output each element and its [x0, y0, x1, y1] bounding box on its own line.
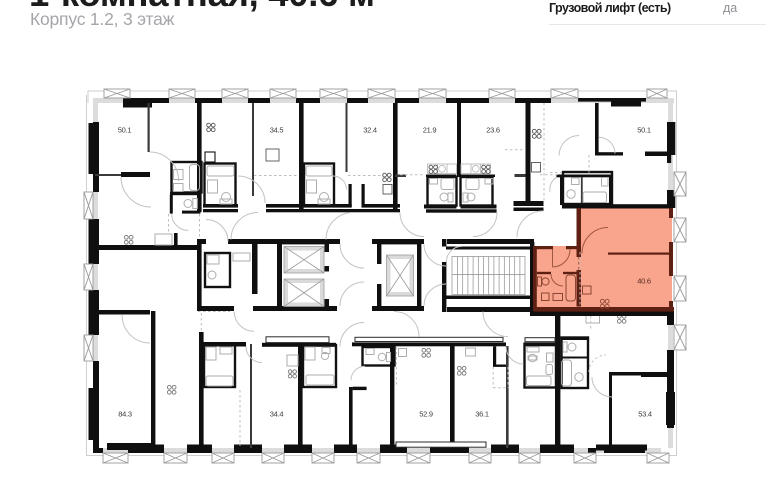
svg-text:34.5: 34.5	[270, 125, 284, 134]
svg-text:52.9: 52.9	[419, 410, 433, 419]
svg-text:34.4: 34.4	[270, 410, 284, 419]
svg-text:23.6: 23.6	[486, 125, 500, 134]
svg-text:53.4: 53.4	[638, 410, 652, 419]
svg-text:50.1: 50.1	[637, 125, 651, 134]
svg-text:50.1: 50.1	[118, 125, 132, 134]
svg-text:36.1: 36.1	[475, 410, 489, 419]
svg-text:40.6: 40.6	[637, 277, 651, 286]
svg-text:32.4: 32.4	[363, 125, 377, 134]
svg-text:84.3: 84.3	[118, 410, 132, 419]
svg-text:21.9: 21.9	[423, 125, 437, 134]
